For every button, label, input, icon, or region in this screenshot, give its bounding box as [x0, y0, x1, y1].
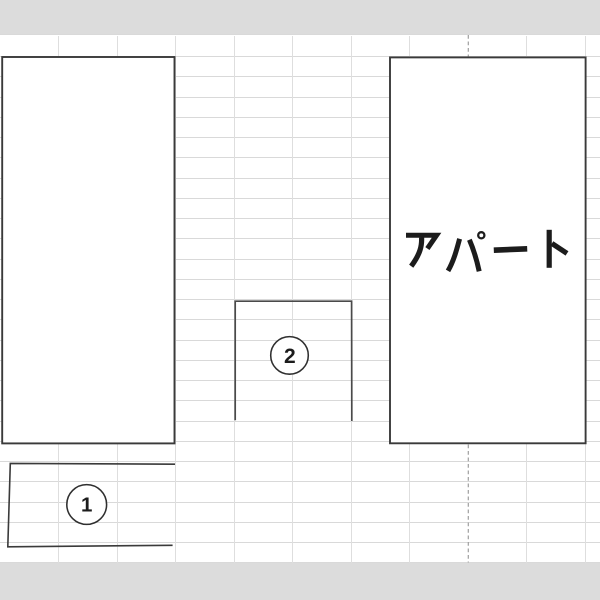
svg-text:2: 2	[284, 345, 296, 368]
svg-text:1: 1	[81, 494, 92, 517]
